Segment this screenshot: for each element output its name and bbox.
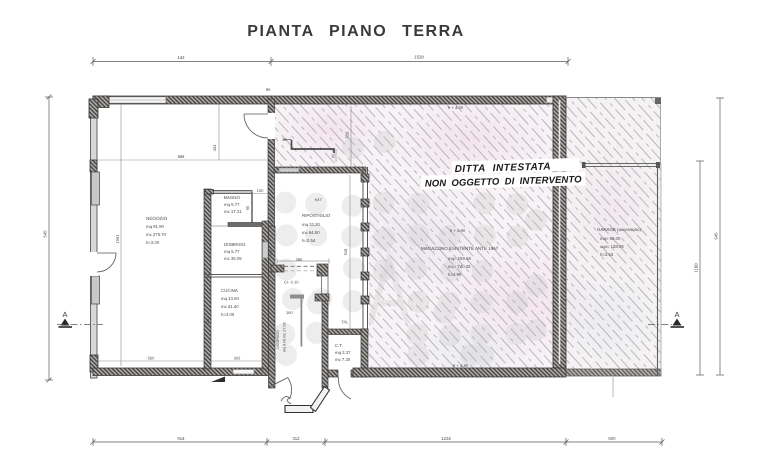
svg-text:h + 3.90: h + 3.90 [450, 228, 466, 233]
svg-text:mc= 740.42: mc= 740.42 [448, 264, 471, 269]
svg-text:h=4.90: h=4.90 [448, 272, 462, 277]
svg-text:sup= 128.05: sup= 128.05 [600, 244, 624, 249]
svg-text:CUCINA: CUCINA [221, 288, 238, 293]
svg-text:918: 918 [343, 248, 348, 255]
svg-text:914: 914 [177, 436, 185, 441]
svg-text:1234: 1234 [441, 436, 451, 441]
svg-text:mq 3.37: mq 3.37 [335, 350, 351, 355]
svg-text:h=3.63: h=3.63 [600, 252, 614, 257]
svg-text:545: 545 [43, 230, 48, 238]
svg-text:1100: 1100 [694, 263, 699, 273]
svg-text:888: 888 [178, 154, 185, 159]
svg-text:RIPOSTIGLIO: RIPOSTIGLIO [302, 213, 331, 218]
svg-text:100: 100 [257, 188, 264, 193]
svg-text:h=2.54: h=2.54 [302, 238, 316, 243]
svg-text:Cr- 0.10: Cr- 0.10 [284, 280, 299, 285]
svg-text:mq 9.06 mc 27.08: mq 9.06 mc 27.08 [283, 322, 287, 352]
svg-text:92: 92 [331, 153, 336, 158]
svg-text:A: A [674, 310, 679, 319]
svg-text:142: 142 [177, 55, 185, 60]
svg-text:500: 500 [608, 436, 616, 441]
svg-text:NEGOZIO: NEGOZIO [146, 216, 168, 221]
svg-text:GARAGE (accessorio): GARAGE (accessorio) [597, 227, 641, 232]
svg-text:302: 302 [234, 356, 241, 361]
svg-text:mc 35.05: mc 35.05 [224, 256, 242, 261]
svg-text:h + 4.90: h + 4.90 [453, 363, 469, 368]
svg-text:h + 4.00: h + 4.00 [448, 105, 464, 110]
svg-text:mc 275.70: mc 275.70 [146, 232, 167, 237]
svg-text:95: 95 [245, 205, 250, 210]
svg-text:mc 7.30: mc 7.30 [335, 357, 351, 362]
svg-text:DISBRIGO: DISBRIGO [275, 330, 280, 349]
svg-text:mc 17.31: mc 17.31 [224, 209, 242, 214]
svg-text:560: 560 [148, 356, 155, 361]
svg-text:TPL: TPL [341, 320, 349, 325]
svg-text:mc 84.50: mc 84.50 [302, 230, 320, 235]
svg-text:mc 41.40: mc 41.40 [221, 304, 239, 309]
svg-text:h=3.05: h=3.05 [221, 312, 235, 317]
svg-text:mq= 159.68: mq= 159.68 [448, 256, 471, 261]
svg-text:1528: 1528 [414, 55, 424, 60]
svg-text:mq 5.77: mq 5.77 [224, 202, 240, 207]
svg-text:945: 945 [714, 232, 719, 240]
svg-text:h=3.00: h=3.00 [146, 240, 160, 245]
svg-text:mq 13.60: mq 13.60 [221, 296, 240, 301]
svg-text:MAGAZZINO ESISTENTE ANTE 19: MAGAZZINO ESISTENTE ANTE 1967 [421, 246, 499, 251]
svg-text:PIANTA PIANO TERRA: PIANTA PIANO TERRA [247, 23, 464, 40]
svg-text:BAGNO: BAGNO [224, 195, 240, 200]
svg-text:434: 434 [212, 144, 217, 151]
svg-text:mq= 55.00: mq= 55.00 [600, 236, 621, 241]
svg-text:A: A [62, 310, 67, 319]
svg-text:mq 33.20: mq 33.20 [302, 222, 321, 227]
svg-text:96: 96 [266, 87, 271, 92]
svg-text:DISBRIGO: DISBRIGO [224, 242, 246, 247]
svg-text:1991: 1991 [115, 234, 120, 244]
svg-text:h47: h47 [315, 197, 322, 202]
svg-text:16: 16 [282, 137, 287, 142]
svg-text:518: 518 [345, 131, 350, 138]
svg-text:mq 5.77: mq 5.77 [224, 249, 240, 254]
svg-text:C.T.: C.T. [335, 343, 343, 348]
svg-text:mq 91.90: mq 91.90 [146, 224, 165, 229]
svg-text:286: 286 [296, 257, 303, 262]
svg-text:245: 245 [268, 248, 273, 255]
svg-text:312: 312 [292, 436, 300, 441]
svg-text:448: 448 [205, 318, 210, 325]
svg-text:160: 160 [286, 310, 293, 315]
